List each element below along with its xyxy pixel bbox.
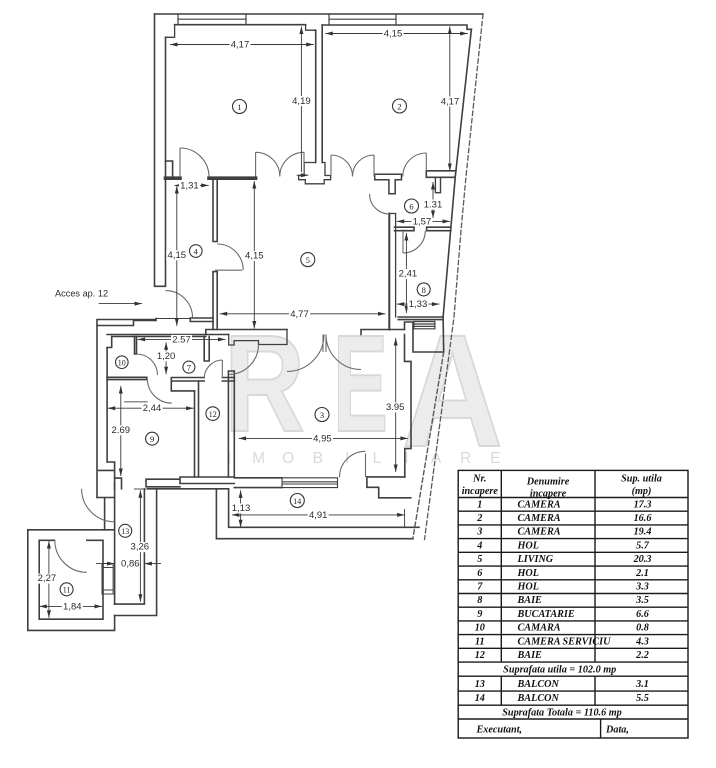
svg-text:5.5: 5.5 [636, 693, 649, 704]
svg-text:CAMERA: CAMERA [518, 527, 561, 538]
svg-text:6: 6 [409, 201, 413, 211]
svg-text:7: 7 [187, 363, 191, 373]
svg-text:3.95: 3.95 [386, 402, 405, 413]
svg-text:1: 1 [477, 500, 482, 511]
svg-text:BAIE: BAIE [517, 650, 543, 661]
svg-text:16.6: 16.6 [634, 513, 653, 524]
svg-text:7: 7 [477, 582, 483, 593]
svg-text:6: 6 [477, 568, 483, 579]
svg-text:3,26: 3,26 [131, 542, 150, 553]
svg-text:2.2: 2.2 [635, 650, 649, 661]
svg-text:1,13: 1,13 [232, 503, 251, 514]
svg-text:1,84: 1,84 [63, 601, 82, 612]
svg-text:E: E [490, 450, 500, 467]
svg-text:HOL: HOL [517, 582, 540, 593]
svg-text:Executant,: Executant, [476, 725, 523, 736]
svg-text:2,27: 2,27 [38, 573, 57, 584]
svg-text:1,33: 1,33 [409, 299, 428, 310]
svg-text:1,57: 1,57 [413, 216, 432, 227]
svg-text:4,19: 4,19 [292, 96, 311, 107]
svg-text:6.6: 6.6 [636, 609, 650, 620]
svg-text:14: 14 [293, 497, 301, 506]
svg-text:3.5: 3.5 [635, 595, 649, 606]
svg-text:11: 11 [475, 636, 485, 647]
svg-text:3.3: 3.3 [635, 582, 649, 593]
svg-text:4.3: 4.3 [635, 636, 649, 647]
svg-text:1: 1 [237, 102, 241, 112]
svg-text:2.57: 2.57 [172, 334, 191, 345]
svg-text:5: 5 [306, 255, 310, 265]
svg-text:4,15: 4,15 [245, 251, 264, 262]
svg-text:5.7: 5.7 [636, 540, 650, 551]
svg-text:BAIE: BAIE [517, 595, 543, 606]
svg-text:3: 3 [320, 410, 324, 420]
svg-text:Nr.: Nr. [472, 474, 486, 485]
svg-text:4,77: 4,77 [290, 309, 309, 320]
svg-text:Suprafata utila = 102.0 mp: Suprafata utila = 102.0 mp [503, 665, 616, 676]
svg-text:4: 4 [476, 540, 482, 551]
svg-text:4,15: 4,15 [384, 29, 403, 40]
svg-text:LIVING: LIVING [517, 554, 554, 565]
svg-text:10: 10 [118, 359, 126, 368]
svg-text:8: 8 [477, 595, 482, 606]
svg-text:M: M [252, 450, 265, 467]
svg-text:CAMARA: CAMARA [518, 623, 561, 634]
svg-text:9: 9 [150, 434, 154, 444]
svg-text:12: 12 [209, 410, 217, 419]
svg-text:9: 9 [477, 609, 482, 620]
svg-text:3: 3 [476, 527, 482, 538]
svg-text:8: 8 [422, 285, 426, 295]
svg-text:2,44: 2,44 [143, 403, 162, 414]
svg-text:CAMERA: CAMERA [518, 500, 561, 511]
svg-text:O: O [282, 450, 294, 467]
svg-text:L: L [373, 450, 382, 467]
svg-text:Sup. utila: Sup. utila [621, 474, 662, 485]
svg-text:R: R [460, 450, 471, 467]
svg-text:19.4: 19.4 [634, 527, 652, 538]
svg-text:Acces ap. 12: Acces ap. 12 [55, 289, 108, 299]
svg-text:2: 2 [397, 101, 401, 111]
svg-text:Denumire: Denumire [526, 477, 570, 488]
svg-text:BALCON: BALCON [517, 679, 560, 690]
svg-text:BUCATARIE: BUCATARIE [517, 609, 575, 620]
svg-text:10: 10 [475, 623, 485, 634]
svg-text:20.3: 20.3 [633, 554, 652, 565]
svg-text:2.1: 2.1 [635, 568, 649, 579]
svg-text:Data,: Data, [605, 725, 629, 736]
svg-text:1,31: 1,31 [180, 180, 199, 191]
svg-text:14: 14 [475, 693, 485, 704]
svg-text:11: 11 [63, 586, 71, 595]
svg-text:0,86: 0,86 [121, 559, 140, 570]
svg-text:1,20: 1,20 [157, 351, 176, 362]
svg-text:HOL: HOL [517, 568, 540, 579]
svg-text:incapere: incapere [462, 486, 499, 497]
svg-text:B: B [313, 450, 323, 467]
svg-text:0.8: 0.8 [636, 623, 649, 634]
svg-text:4,17: 4,17 [231, 40, 250, 51]
svg-text:2,41: 2,41 [399, 269, 418, 280]
svg-text:13: 13 [121, 527, 129, 536]
svg-text:13: 13 [475, 679, 485, 690]
svg-text:Suprafata Totala = 110.6 mp: Suprafata Totala = 110.6 mp [502, 708, 622, 719]
svg-text:2: 2 [476, 513, 482, 524]
svg-text:CAMERA: CAMERA [518, 513, 561, 524]
svg-text:4,17: 4,17 [441, 97, 460, 108]
svg-text:4: 4 [194, 246, 199, 256]
svg-text:A: A [431, 450, 442, 467]
svg-text:incapere: incapere [530, 488, 567, 499]
svg-text:4,95: 4,95 [313, 433, 332, 444]
svg-text:12: 12 [475, 650, 485, 661]
svg-text:17.3: 17.3 [634, 500, 652, 511]
svg-text:5: 5 [477, 554, 482, 565]
svg-text:2.69: 2.69 [112, 425, 131, 436]
svg-text:(mp): (mp) [632, 486, 652, 497]
svg-text:4,15: 4,15 [168, 250, 187, 261]
svg-text:HOL: HOL [517, 540, 540, 551]
svg-text:3.1: 3.1 [635, 679, 649, 690]
svg-text:1.31: 1.31 [424, 200, 443, 211]
svg-text:BALCON: BALCON [517, 693, 560, 704]
svg-text:4,91: 4,91 [309, 510, 328, 521]
svg-text:CAMERA SERVICIU: CAMERA SERVICIU [518, 636, 612, 647]
